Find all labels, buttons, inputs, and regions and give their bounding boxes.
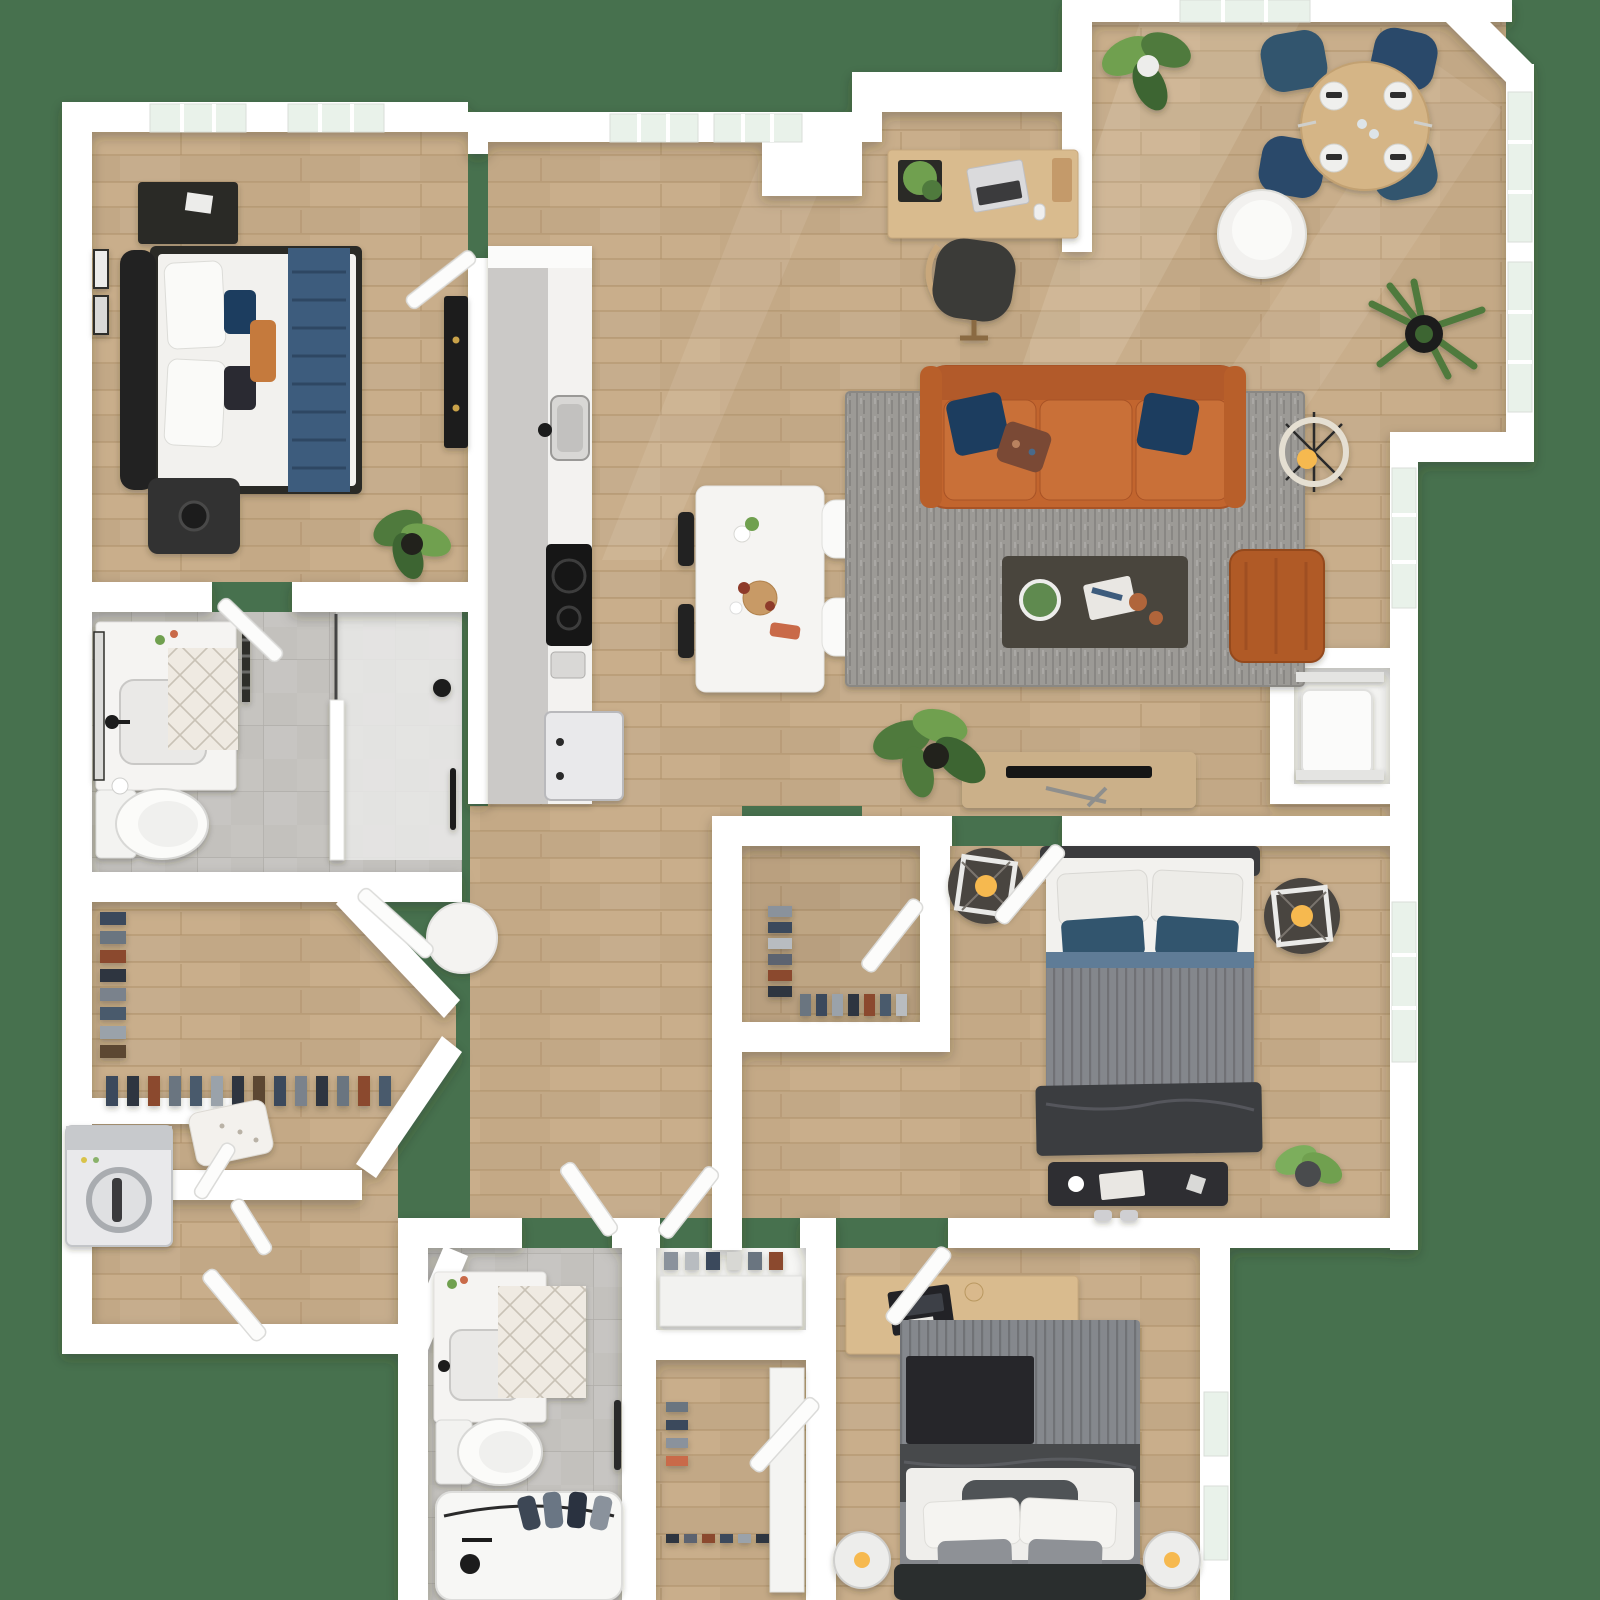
coffee-table	[1002, 556, 1188, 648]
tv	[1006, 766, 1152, 778]
wall-south-c	[800, 1218, 836, 1248]
wall-bath-closet	[62, 872, 462, 902]
dresser-papers	[185, 192, 213, 213]
shelf	[1296, 770, 1384, 780]
wall-bath2-left	[398, 1248, 428, 1600]
media-cabinet	[444, 296, 468, 448]
place-setting	[1320, 144, 1348, 172]
shelf-front	[660, 1276, 802, 1326]
wall-bed2-top-a	[742, 816, 952, 846]
window	[150, 104, 246, 132]
wall-south-a	[398, 1218, 522, 1248]
accent-chair	[1230, 550, 1324, 662]
headboard	[120, 250, 156, 490]
cabinet-knob	[453, 405, 460, 412]
wall-bed1-right-a	[468, 132, 488, 154]
wall-bed1-bath-b	[292, 582, 468, 612]
laundry-closet	[66, 1126, 172, 1246]
window	[1392, 468, 1416, 608]
black-throw	[906, 1356, 1034, 1444]
window	[714, 114, 802, 142]
wall-right-step	[1390, 432, 1534, 462]
wall-bed2-top-b	[1062, 816, 1390, 846]
wall-linen-bottom	[656, 1330, 806, 1360]
place-setting	[1320, 82, 1348, 110]
wall-art	[94, 250, 108, 288]
dark-throw	[1035, 1082, 1262, 1156]
lamp-glow	[975, 875, 997, 897]
refrigerator	[545, 712, 623, 800]
laptop	[967, 159, 1030, 212]
window	[610, 114, 698, 142]
shower-head	[433, 679, 451, 697]
washer-drum	[112, 1178, 122, 1222]
wall-south-b	[612, 1218, 660, 1248]
grab-bar	[614, 1400, 621, 1470]
bathtub	[436, 1491, 622, 1600]
leather-sofa	[920, 366, 1246, 508]
mouse	[1034, 204, 1045, 220]
place-setting	[1384, 144, 1412, 172]
candle	[965, 1283, 983, 1301]
window	[1508, 92, 1532, 242]
wall-south-d	[948, 1218, 1390, 1248]
orange-pillow	[250, 320, 276, 382]
window	[1204, 1392, 1228, 1456]
vanity-decor	[170, 630, 178, 638]
window	[288, 104, 384, 132]
mug	[1068, 1176, 1084, 1192]
pillow	[164, 359, 226, 448]
wall-bed1-top	[62, 102, 468, 132]
floor-plan-stage	[0, 0, 1600, 1600]
floor-plan	[0, 0, 1600, 1600]
glass	[1357, 119, 1367, 129]
window	[1508, 262, 1532, 412]
pillow	[164, 261, 226, 350]
tub-faucet	[460, 1554, 480, 1574]
desk-plant	[922, 180, 942, 200]
toilet-paper	[112, 778, 128, 794]
faucet	[538, 423, 552, 437]
round-side-table	[427, 903, 497, 973]
fridge-handle	[556, 772, 564, 780]
slipper	[1094, 1210, 1112, 1221]
dresser	[138, 182, 238, 244]
vanity-plant	[155, 635, 165, 645]
bath-mat	[498, 1286, 586, 1398]
water-heater	[1302, 690, 1372, 774]
navy-runner	[288, 248, 350, 492]
cylinder-table-top	[1232, 200, 1292, 260]
tv-console	[962, 752, 1196, 808]
slipper	[1120, 1210, 1138, 1221]
wall-top-upper	[852, 72, 1092, 112]
bar-stool	[678, 604, 694, 658]
wall-bath2-right	[622, 1248, 656, 1600]
desk-tray	[1052, 158, 1072, 202]
hall-floor	[470, 806, 742, 1218]
wall-bed1-right-b	[468, 258, 488, 804]
wall-storage-bottom	[1270, 784, 1390, 804]
wall-art	[94, 296, 108, 334]
counter-gray	[488, 268, 548, 804]
window	[1392, 902, 1416, 1062]
window	[1204, 1486, 1228, 1560]
lamp-glow	[1291, 905, 1313, 927]
glass	[1369, 129, 1379, 139]
wall-closet2-right	[920, 846, 950, 1022]
toilet	[436, 1419, 542, 1485]
faucet	[438, 1360, 450, 1372]
wall-bed1-bath-a	[62, 582, 212, 612]
lamp-glow	[1164, 1552, 1180, 1568]
window	[1180, 0, 1310, 22]
shelf	[1296, 672, 1384, 682]
shower-bar	[450, 768, 456, 830]
toaster	[551, 652, 585, 678]
mirror	[94, 632, 104, 780]
shower-half-wall	[330, 700, 344, 860]
papers	[1099, 1170, 1145, 1200]
shower-floor	[336, 612, 462, 860]
headboard	[894, 1564, 1146, 1600]
navy-pillow	[1136, 392, 1201, 457]
cabinet-knob	[453, 337, 460, 344]
sink-basin	[557, 404, 583, 452]
nightstand-right	[1264, 878, 1340, 954]
wall-bottom-left	[62, 1324, 398, 1354]
speaker-cone	[180, 502, 208, 530]
lamp-glow	[854, 1552, 870, 1568]
washer-top	[66, 1126, 172, 1150]
closet-shelves	[770, 1368, 804, 1592]
bath-mat	[168, 648, 238, 750]
wall-bed2-left	[712, 816, 742, 1250]
fridge-handle	[556, 738, 564, 746]
bar-stool	[678, 512, 694, 566]
wall-closet2-bottom	[742, 1022, 950, 1052]
place-setting	[1384, 82, 1412, 110]
wall-closet3-right	[806, 1248, 836, 1600]
